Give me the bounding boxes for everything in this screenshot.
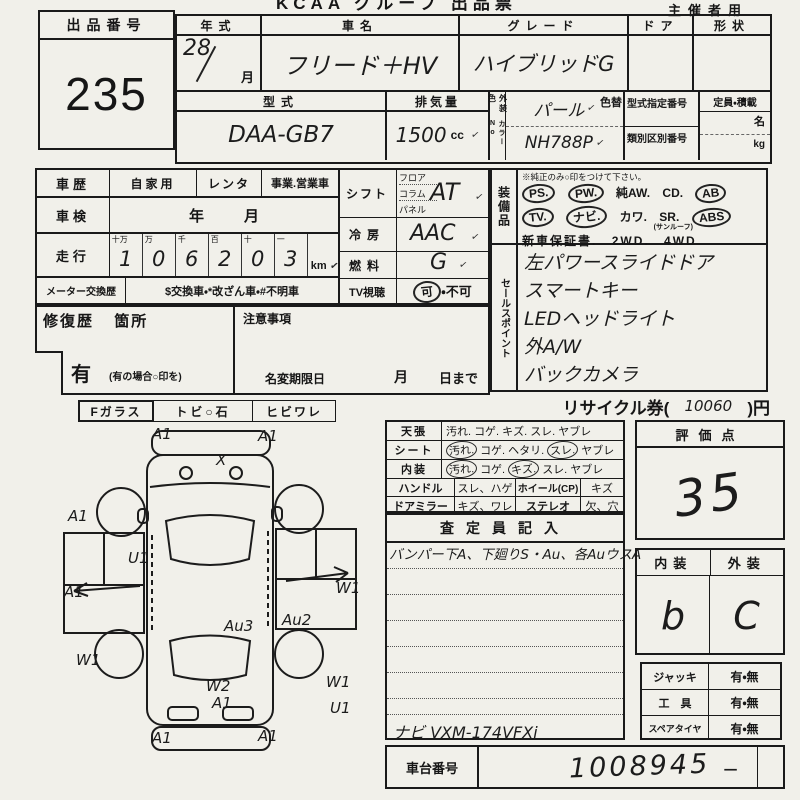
equipment-ab: AB [695,183,728,205]
recycle-suffix: )円 [747,394,770,419]
grade-header: グレード [460,16,629,36]
repair-has: 有 [71,358,91,387]
damage-mark: W1 [336,579,360,597]
auction-number-value: 235 [40,40,173,148]
repair-box: 修復歴 箇所 有 (有の場合○印を) [35,305,235,395]
sales-points-label: セールスポイント [497,278,512,358]
equipment-abs: ABS [691,206,732,228]
accessory-value: 有・無 [709,690,780,715]
condition-label: ホイール(CP) [516,479,581,496]
condition-options: 汚れ. コゲ. キズ. スレ. ヤブレ [442,460,623,478]
history-table: 車歴 自家用 レンタ 事業.営業車 車検 年 月 走行 十万 1 万 0 千 6 [35,168,340,305]
condition-opt: スレ. [530,423,555,439]
car-outline-drawing [40,423,370,763]
damage-mark: A1 [258,427,278,445]
tv-ok-circled: 可 [412,280,442,305]
ac-value: AAC [410,221,455,246]
shift-row: シフト フロア コラム パネル AT ✓ [338,170,488,218]
digit-value: 3 [275,245,307,273]
damage-mark: A1 [152,425,172,443]
condition-opt: ヤブレ [570,461,603,477]
repair-note: (有の場合○印を) [109,368,182,383]
displacement-header: 排気量 [387,92,488,112]
condition-opt: スレ. [542,461,567,477]
ie-value-row: b C [637,576,783,655]
digit-header: 十万 [110,234,142,245]
mileage-digits: 十万 1 万 0 千 6 百 2 十 0 一 3 [110,234,338,276]
sales-points-box: セールスポイント 左パワースライドドア スマートキー LEDヘッドライト 外A/… [490,245,768,392]
capacity-header: 定員・積載 [700,92,770,112]
name-change-month: 月 [394,367,408,387]
car-history-private: 自家用 [110,170,197,196]
condition-opt-circled: キズ. [508,459,540,479]
chassis-value: 1008945 [569,749,711,785]
tv-label: TV視聴 [338,279,397,305]
condition-opt: コゲ. [480,442,505,458]
equipment-pw: PW. [567,182,605,204]
interior-exterior-box: 内装 外装 b C [635,548,785,655]
condition-opt: 汚れ. [446,423,471,439]
damage-mark: W1 [326,673,350,691]
tv-row: TV視聴 可・不可 [338,279,488,305]
condition-opt: キズ [581,479,623,496]
auction-number-label: 出品番号 [40,12,173,40]
digit-cell: 十 0 [242,234,275,276]
color-change-label: 色替 [600,94,622,110]
notes-box: 注意事項 名変期限日 月 日まで [235,305,490,395]
digit-header: 十 [242,234,274,245]
inspection-year: 年 [189,205,204,226]
check-icon: ✓ [586,103,596,115]
door-header: ドア [629,16,694,36]
assessor-nav: ナビ VXM-174VFXi [387,714,623,743]
auction-number-box: 出品番号 235 [38,10,175,150]
exterior-grade-cell: C [710,576,783,655]
inspection-row: 車検 年 月 [37,198,338,234]
grade-cell: ハイブリッドG [460,36,629,92]
recycle-value: 10060 [669,397,747,415]
capacity-persons: 名 [700,112,770,135]
rear-window [170,636,250,681]
color-side-labels: 外装色 カラーNo [490,92,506,160]
condition-label: 内装 [387,460,442,478]
condition-opt: コゲ. [480,461,505,477]
equipment-leather: カワ. [620,208,647,225]
condition-opt: スレ、ハゲ [455,479,516,496]
damage-mark: W1 [76,651,100,669]
mileage-unit: km ✓ [308,234,338,276]
assessor-empty-line [387,647,623,673]
capacity-kg: kg [700,135,770,160]
fuel-row: 燃料 G ✓ [338,252,488,279]
damage-mark: Au2 [282,611,311,629]
repair-label-row: 修復歴 箇所 [37,307,233,334]
assessor-spacer [387,699,623,714]
assessor-note: バンパー下A、下廻りS・Au、各AuウスA [387,543,623,569]
condition-row-ceiling: 天張 汚れ. コゲ. キズ. スレ. ヤブレ [387,422,623,441]
repair-label: 修復歴 [43,313,94,330]
chassis-end-cell [757,747,783,787]
equipment-label: 装備品 [496,186,513,228]
chassis-label: 車台番号 [387,747,479,787]
sales-side-label: セールスポイント [492,245,518,390]
displacement-unit: cc [451,128,464,142]
model-header: 型式 [177,92,385,112]
score-box: 評価点 35 [635,420,785,540]
equipment-cd: CD. [662,186,683,200]
notes-label: 注意事項 [235,307,488,330]
digit-value: 1 [110,245,142,273]
accessory-value: 有・無 [709,716,780,740]
damage-mark: A1 [64,583,84,601]
name-cell: フリード＋HV [262,36,460,92]
equipment-ps: PS. [521,183,556,205]
condition-opt: ヤブレ [558,423,591,439]
condition-label: 天張 [387,422,442,440]
condition-row-seat: シート 汚れ. コゲ. ヘタリ. スレ. ヤブレ [387,441,623,460]
equipment-row-2: TV. ナビ. カワ. SR. (サンルーフ) ABS [522,206,762,228]
glass-f-label: Fガラス [78,400,154,422]
year-header: 年式 [177,16,262,36]
year-value: 28 [183,36,211,61]
check-icon: ✓ [595,137,605,149]
condition-opt: コゲ. [474,423,499,439]
glass-crack-label: ヒビワレ [252,400,336,422]
inspection-month: 月 [244,205,259,226]
digit-cell: 千 6 [176,234,209,276]
color-col: 外装色 カラーNo パール ✓ NH788P ✓ 色替 [490,92,625,160]
car-diagram: A1 A1 X A1 U1 A1 W1 Au2 Au3 W1 W2 A1 W1 … [40,423,370,763]
assessor-empty-line [387,595,623,621]
damage-mark: X [216,451,226,469]
digit-cell: 百 2 [209,234,242,276]
mileage-row: 走行 十万 1 万 0 千 6 百 2 十 0 一 [37,234,338,278]
condition-row-interior: 内装 汚れ. コゲ. キズ. スレ. ヤブレ [387,460,623,479]
accessory-label: 工 具 [642,690,709,715]
check-icon: ✓ [474,191,484,203]
accessory-label: スペアタイヤ [642,716,709,740]
accessory-row-tools: 工 具 有・無 [642,690,780,716]
digit-value: 0 [242,245,274,273]
year-month-suffix: 月 [241,67,254,86]
color-no-value: NH788P [525,133,593,153]
digit-cell: 万 0 [143,234,176,276]
ext-color-value: パール [533,96,584,121]
meter-row: メーター交換歴 $交換車・*改ざん車・#不明車 [37,278,338,303]
damage-mark: U1 [330,699,351,717]
glass-row: Fガラス トビ○石 ヒビワレ [78,400,336,422]
damage-mark: A1 [152,729,172,747]
car-history-label: 車歴 [37,170,110,196]
digit-value: 0 [143,245,175,273]
equipment-navi: ナビ. [565,204,608,230]
repair-box-notch [35,351,63,395]
digit-header: 一 [275,234,307,245]
equipment-sr: SR. (サンルーフ) [659,210,679,224]
meter-label: メーター交換歴 [37,278,126,303]
sales-point-item: バックカメラ [524,360,760,387]
equipment-tv: TV. [521,207,554,229]
tv-cell: 可・不可 [397,281,488,303]
equipment-side-label: 装備品 [492,170,518,243]
model-col: 型式 DAA-GB7 [177,92,387,160]
name-change-day: 日まで [439,368,478,387]
type-designation-cell: 型式指定番号 [625,92,698,127]
inspection-cell: 年 月 [110,198,338,232]
sheet-title-text: KCAA グループ 出品票 [276,0,536,11]
equipment-sr-note: (サンルーフ) [653,222,693,232]
model-value: DAA-GB7 [228,122,334,148]
condition-table: 天張 汚れ. コゲ. キズ. スレ. ヤブレ シート 汚れ. コゲ. ヘタリ. … [385,420,625,513]
sales-point-item: 左パワースライドドア [524,248,760,275]
color-no-label: カラーNo [489,120,506,158]
accessory-value: 有・無 [709,664,780,689]
sales-point-item: スマートキー [524,276,760,303]
accessory-label: ジャッキ [642,664,709,689]
displacement-col: 排気量 1500 cc ✓ [387,92,490,160]
equipment-aw: 純AW. [616,184,650,201]
condition-options: 汚れ. コゲ. ヘタリ. スレ. ヤブレ [442,441,623,459]
chassis-row: 車台番号 1008945 − [385,745,785,789]
digit-cell: 十万 1 [110,234,143,276]
condition-options: 汚れ. コゲ. キズ. スレ. ヤブレ [442,422,623,440]
sales-point-item: 外A/W [524,332,760,359]
wheel-rear-right [275,630,323,678]
assessor-empty-line [387,621,623,647]
condition-opt-circled: 汚れ. [445,440,477,460]
condition-opt: ヤブレ [581,442,614,458]
assessor-empty-line [387,673,623,699]
check-icon: ✓ [458,259,468,271]
name-header: 車名 [262,16,460,36]
car-history-rental: レンタ [197,170,262,196]
damage-mark: A1 [258,727,278,745]
digit-header: 百 [209,234,241,245]
interior-grade-cell: b [637,576,710,655]
model-cell: DAA-GB7 [177,112,385,158]
chassis-dash: − [722,757,739,781]
ac-row: 冷房 AAC ✓ [338,218,488,252]
controls-table: シフト フロア コラム パネル AT ✓ 冷房 AAC ✓ 燃料 G ✓ TV視… [338,168,490,305]
equipment-row-1: PS. PW. 純AW. CD. AB [522,184,762,203]
chassis-value-cell: 1008945 − [479,747,757,787]
wheel-rear-left [95,630,143,678]
sales-point-item: LEDヘッドライト [524,304,760,331]
exterior-grade: C [733,594,760,638]
assessor-empty-line [387,569,623,595]
exterior-label: 外装 [711,550,784,575]
condition-label: ハンドル [387,479,455,496]
ac-label: 冷房 [338,218,397,251]
digit-header: 千 [176,234,208,245]
capacity-col: 定員・積載 名 kg [700,92,770,160]
damage-mark: A1 [212,694,232,712]
glass-stone-label: トビ○石 [154,400,252,422]
damage-mark: Au3 [224,617,253,635]
interior-label: 内装 [637,550,711,575]
assessor-box: 査定員記入 バンパー下A、下廻りS・Au、各AuウスA ナビ VXM-174VF… [385,513,625,740]
mileage-label: 走行 [37,234,110,276]
shape-cell [694,36,770,92]
displacement-cell: 1500 cc ✓ [387,112,488,158]
inspection-label: 車検 [37,198,110,232]
equipment-note: ※純正のみ○印をつけて下さい。 [522,171,762,183]
accessory-row-jack: ジャッキ 有・無 [642,664,780,690]
sales-points-list: 左パワースライドドア スマートキー LEDヘッドライト 外A/W バックカメラ [518,245,766,390]
shift-label: シフト [338,170,397,217]
sheet-title: KCAA グループ 出品票 [276,0,536,11]
accessory-row-spare: スペアタイヤ 有・無 [642,716,780,740]
condition-row-handle: ハンドル スレ、ハゲ ホイール(CP) キズ [387,479,623,497]
class-number-label: 類別区別番号 [627,134,687,145]
damage-mark: A1 [68,507,88,525]
recycle-prefix: リサイクル券( [563,394,670,419]
digit-value: 6 [176,245,208,273]
tv-ng: 不可 [446,284,472,299]
grade-value: ハイブリッドG [473,48,615,78]
digit-header: 万 [143,234,175,245]
assessor-header: 査定員記入 [387,515,623,543]
name-change-label: 名変期限日 [265,370,325,387]
condition-opt-circled: スレ. [547,440,579,460]
vehicle-table: 年式 車名 グレード ドア 形状 28 月 フリード＋HV ハイブリッドG 型式… [175,14,772,164]
shift-value: AT [430,178,459,206]
condition-opt: キズ. [502,423,527,439]
shape-header: 形状 [694,16,770,36]
damage-mark: U1 [128,549,149,567]
condition-opt: ヘタリ. [508,442,544,458]
type-designation-label: 型式指定番号 [627,99,687,110]
year-cell: 28 月 [177,36,262,92]
color-no-cell: NH788P ✓ [506,127,623,161]
fuel-value: G [430,250,447,275]
meter-note: $交換車・*改ざん車・#不明車 [126,278,338,303]
fuel-label: 燃料 [338,252,397,278]
condition-opt-circled: 汚れ. [445,459,477,479]
interior-grade: b [661,594,685,638]
displacement-value: 1500 [396,123,447,147]
check-icon: ✓ [470,231,480,243]
equipment-content: ※純正のみ○印をつけて下さい。 PS. PW. 純AW. CD. AB TV. … [518,170,766,243]
class-number-cell: 類別区別番号 [625,127,698,161]
recycle-row: リサイクル券( 10060 )円 [470,394,770,418]
repair-sub-label: 箇所 [114,313,148,330]
car-history-business: 事業.営業車 [262,170,338,196]
score-value: 35 [671,461,750,528]
windshield [166,515,254,565]
name-value: フリード＋HV [283,46,437,81]
km-label: km [311,260,327,272]
score-label: 評価点 [637,422,783,448]
damage-mark: W2 [206,677,230,695]
condition-label: シート [387,441,442,459]
designation-col: 型式指定番号 類別区別番号 [625,92,700,160]
score-cell: 35 [637,448,783,542]
digit-cell: 一 3 [275,234,308,276]
ie-header-row: 内装 外装 [637,550,783,576]
equipment-box: 装備品 ※純正のみ○印をつけて下さい。 PS. PW. 純AW. CD. AB … [490,168,768,245]
car-history-row: 車歴 自家用 レンタ 事業.営業車 [37,170,338,198]
check-icon: ✓ [470,129,480,141]
door-cell [629,36,694,92]
accessories-box: ジャッキ 有・無 工 具 有・無 スペアタイヤ 有・無 [640,662,782,740]
digit-value: 2 [209,245,241,273]
